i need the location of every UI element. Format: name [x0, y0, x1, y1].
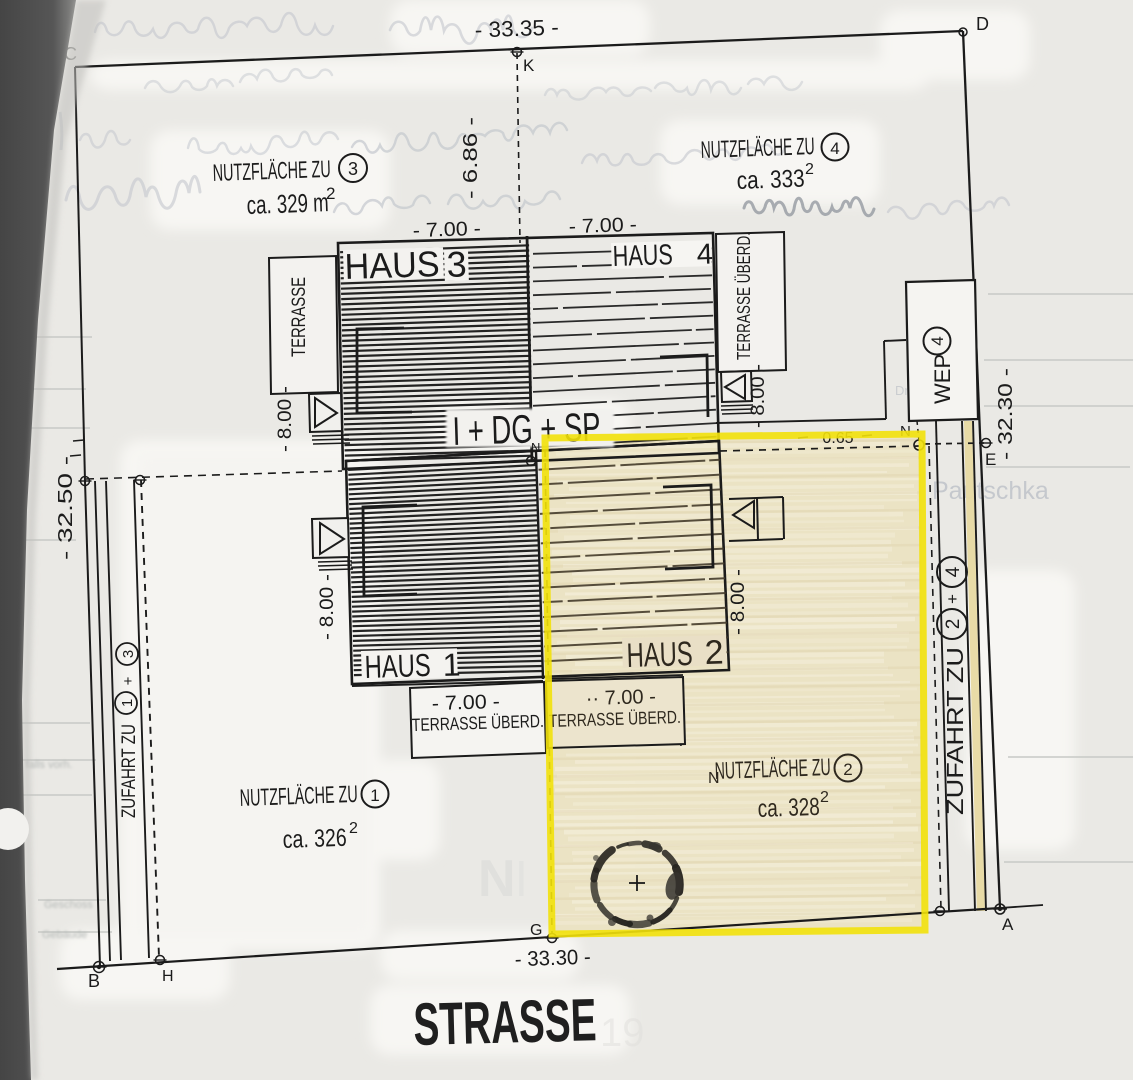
- svg-text:TERRASSE ÜBERD.: TERRASSE ÜBERD.: [734, 232, 754, 360]
- svg-text:4: 4: [943, 566, 964, 577]
- svg-text:4: 4: [928, 336, 947, 345]
- svg-text:D: D: [976, 14, 989, 34]
- svg-text:NUTZFLÄCHE ZU: NUTZFLÄCHE ZU: [700, 133, 815, 164]
- svg-text:- 8.00 -: - 8.00 -: [317, 574, 338, 640]
- svg-text:ca. 328: ca. 328: [757, 793, 820, 823]
- svg-text:ca. 333: ca. 333: [736, 165, 805, 195]
- svg-text:Gebäude: Gebäude: [42, 929, 87, 941]
- svg-text:ca. 329 m: ca. 329 m: [246, 187, 329, 220]
- svg-text:+: +: [943, 594, 962, 604]
- svg-text:2: 2: [820, 789, 829, 806]
- svg-text:+: +: [120, 676, 137, 685]
- svg-text:4: 4: [830, 139, 839, 158]
- svg-text:STRASSE: STRASSE: [413, 986, 598, 1058]
- svg-text:- 33.35 -: - 33.35 -: [474, 15, 559, 43]
- svg-text:HAUS: HAUS: [364, 647, 431, 685]
- svg-text:WEP: WEP: [930, 354, 955, 404]
- svg-text:TERRASSE ÜBERD.: TERRASSE ÜBERD.: [549, 707, 682, 731]
- svg-text:- 32.50 -: - 32.50 -: [55, 456, 77, 560]
- svg-text:ca. 326: ca. 326: [282, 824, 347, 854]
- svg-text:- 33.30 -: - 33.30 -: [514, 946, 591, 972]
- svg-text:I + DG + SP: I + DG + SP: [452, 405, 601, 454]
- svg-text:3: 3: [120, 650, 137, 658]
- svg-text:2: 2: [704, 633, 724, 672]
- svg-text:1: 1: [442, 646, 461, 683]
- svg-text:NUTZFLÄCHE ZU: NUTZFLÄCHE ZU: [212, 156, 331, 187]
- svg-text:Pautschka: Pautschka: [932, 477, 1049, 505]
- svg-text:ZUFAHRT ZU: ZUFAHRT ZU: [942, 647, 968, 815]
- svg-text:- 6.86 -: - 6.86 -: [460, 117, 482, 199]
- svg-text:ZUFAHRT ZU: ZUFAHRT ZU: [119, 724, 140, 818]
- svg-text:3: 3: [348, 159, 358, 179]
- svg-text:Geschoss: Geschoss: [44, 899, 93, 911]
- svg-text:1: 1: [119, 699, 136, 707]
- svg-text:HAUS: HAUS: [626, 635, 693, 675]
- svg-text:N: N: [478, 850, 516, 908]
- svg-text:2: 2: [943, 619, 964, 630]
- svg-text:2: 2: [326, 184, 335, 203]
- svg-text:H: H: [162, 968, 174, 985]
- svg-text:- 7.00 -: - 7.00 -: [431, 691, 500, 715]
- svg-text:2: 2: [349, 820, 358, 837]
- svg-text:NUTZFLÄCHE ZU: NUTZFLÄCHE ZU: [239, 781, 358, 812]
- svg-text:- 8.00 -: - 8.00 -: [275, 386, 296, 452]
- svg-text:1: 1: [370, 786, 379, 805]
- svg-text:- 7.00 -: - 7.00 -: [568, 214, 637, 238]
- svg-text:l: l: [516, 854, 527, 907]
- svg-text:A: A: [1002, 915, 1014, 934]
- svg-text:NUTZFLÄCHE ZU: NUTZFLÄCHE ZU: [714, 754, 831, 785]
- svg-text:3: 3: [446, 243, 467, 285]
- svg-text:- 7.00 -: - 7.00 -: [412, 218, 481, 242]
- svg-text:G: G: [530, 922, 542, 939]
- svg-text:B: B: [88, 971, 100, 991]
- svg-text:2: 2: [843, 760, 852, 779]
- svg-text:2: 2: [805, 161, 814, 178]
- svg-text:HAUS: HAUS: [612, 239, 673, 273]
- svg-text:- 32.30 -: - 32.30 -: [995, 368, 1017, 460]
- svg-text:HAUS: HAUS: [344, 243, 440, 287]
- svg-text:N: N: [531, 440, 540, 455]
- svg-text:TERRASSE: TERRASSE: [289, 277, 310, 357]
- svg-text:19: 19: [600, 1011, 645, 1055]
- svg-text:- 8.00 -: - 8.00 -: [728, 569, 749, 635]
- svg-text:·· 7.00 -: ·· 7.00 -: [585, 686, 656, 710]
- svg-text:4: 4: [696, 239, 713, 271]
- svg-text:E: E: [985, 450, 996, 469]
- svg-text:- 8.00 -: - 8.00 -: [748, 364, 769, 428]
- svg-text:K: K: [523, 56, 535, 75]
- svg-text:TERRASSE ÜBERD.: TERRASSE ÜBERD.: [412, 711, 545, 735]
